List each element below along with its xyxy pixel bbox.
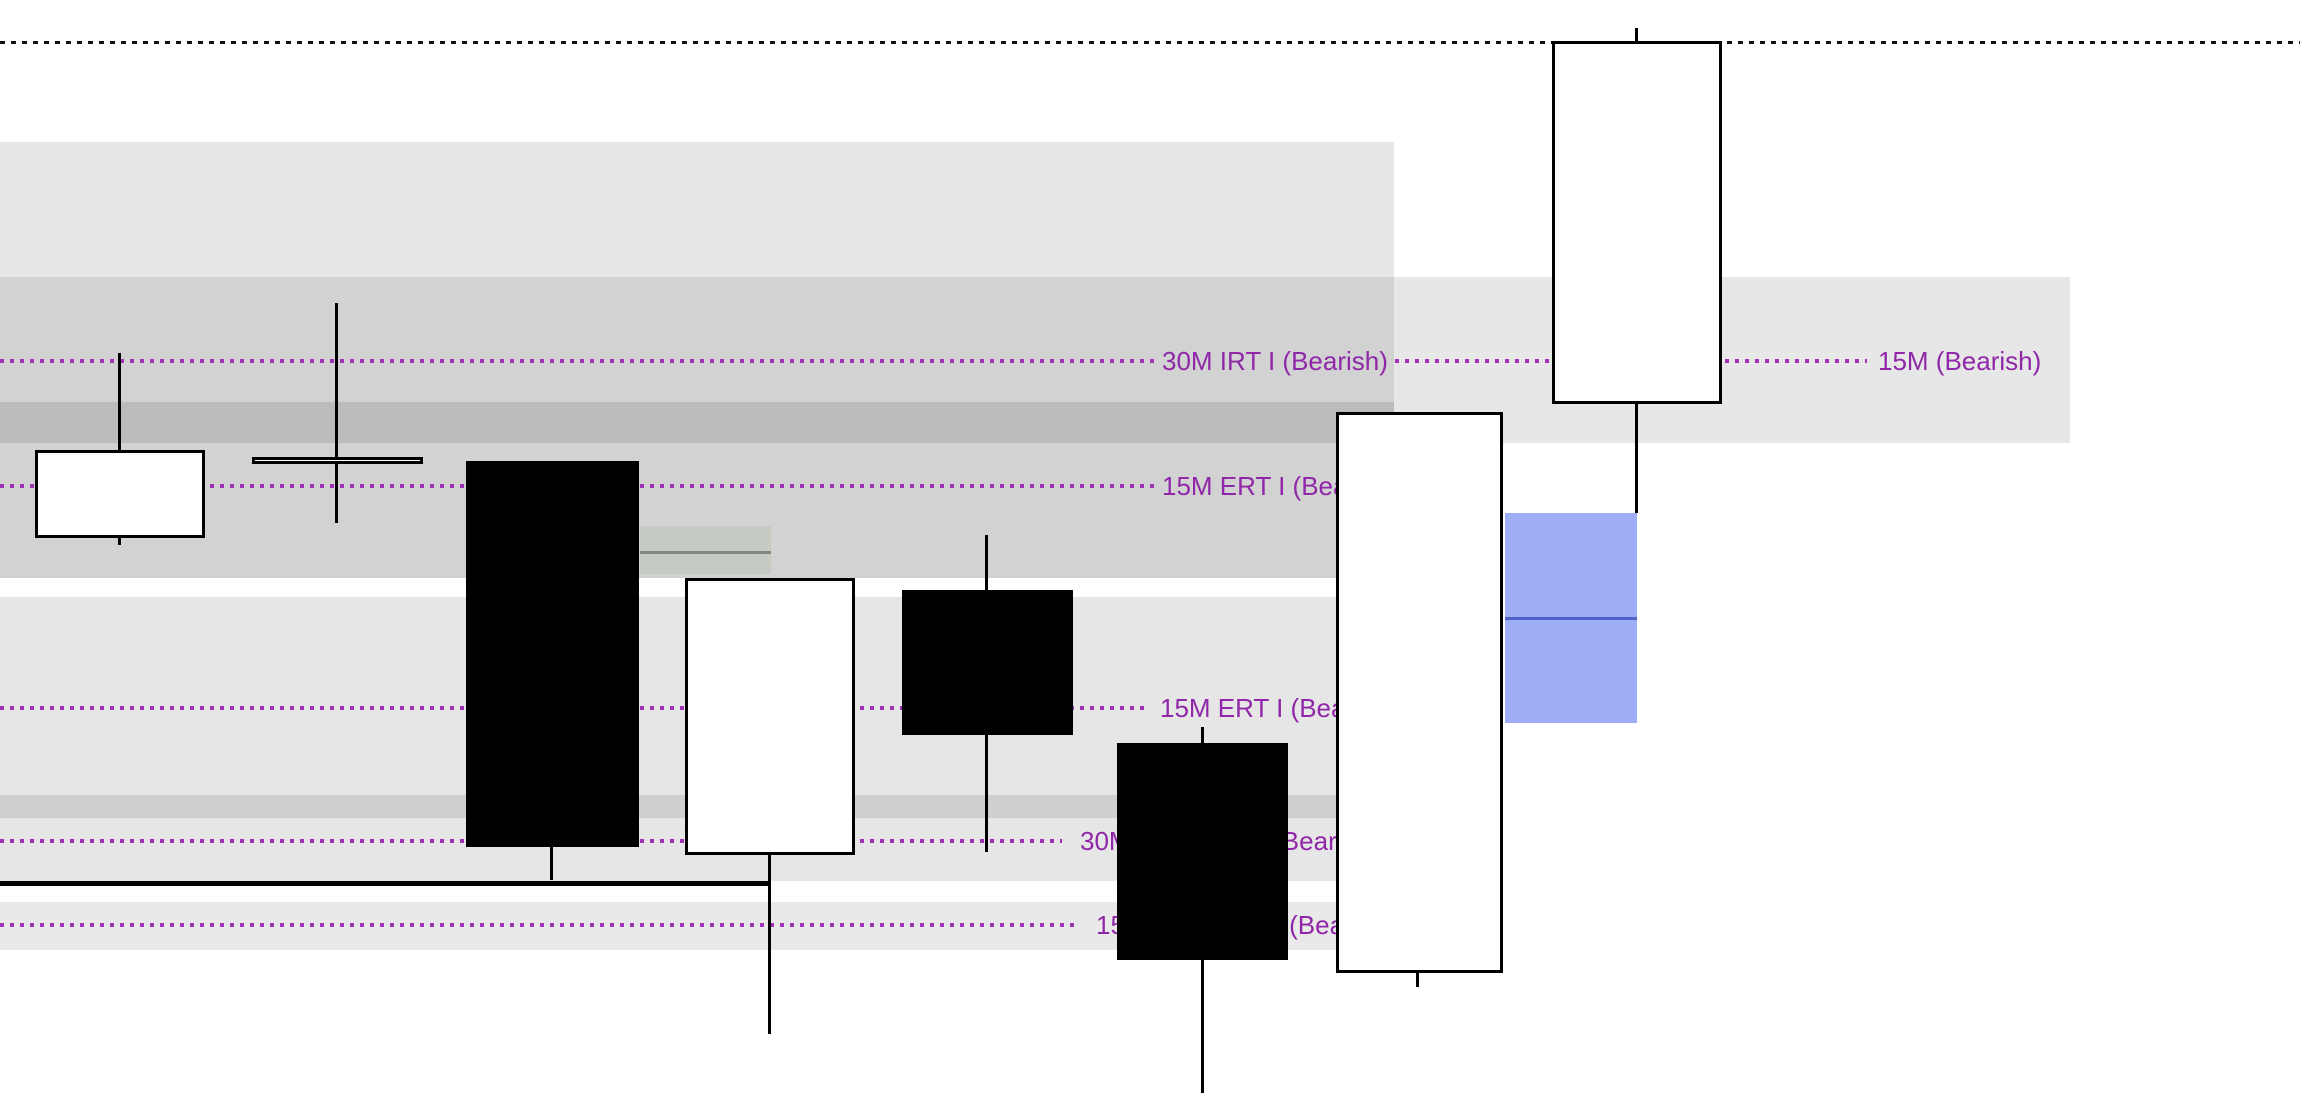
supply-zone-overlap-upper[interactable]	[0, 277, 1394, 402]
candle-body-white	[252, 457, 423, 464]
level-label[interactable]: 15M (Bearish)	[1878, 348, 2041, 374]
candle-body-black	[466, 461, 639, 847]
candle-body-black	[1117, 743, 1288, 960]
level-line[interactable]	[0, 923, 1078, 927]
candlestick-chart-canvas[interactable]: 30M IRT I (Bearish)15M (Bearish)15M ERT …	[0, 0, 2300, 1120]
solid-price-line[interactable]	[0, 881, 768, 886]
candle-body-white	[35, 450, 205, 538]
level-line[interactable]	[0, 359, 1157, 363]
demand-zone-green-mid-line	[640, 551, 771, 554]
candle-wick	[335, 303, 338, 523]
top-dotted-line[interactable]	[0, 41, 2300, 44]
blue-zone-mid-line	[1505, 617, 1637, 620]
candle-body-white	[1552, 41, 1722, 404]
candle-body-white	[1336, 412, 1503, 973]
level-label[interactable]: 30M IRT I (Bearish)	[1162, 348, 1388, 374]
supply-zone-top[interactable]	[0, 142, 1394, 277]
candle-body-white	[685, 578, 855, 855]
supply-zone-overlap-dark[interactable]	[0, 402, 1394, 443]
candle-body-black	[902, 590, 1073, 735]
blue-zone[interactable]	[1505, 513, 1637, 723]
demand-zone-green[interactable]	[640, 526, 771, 574]
